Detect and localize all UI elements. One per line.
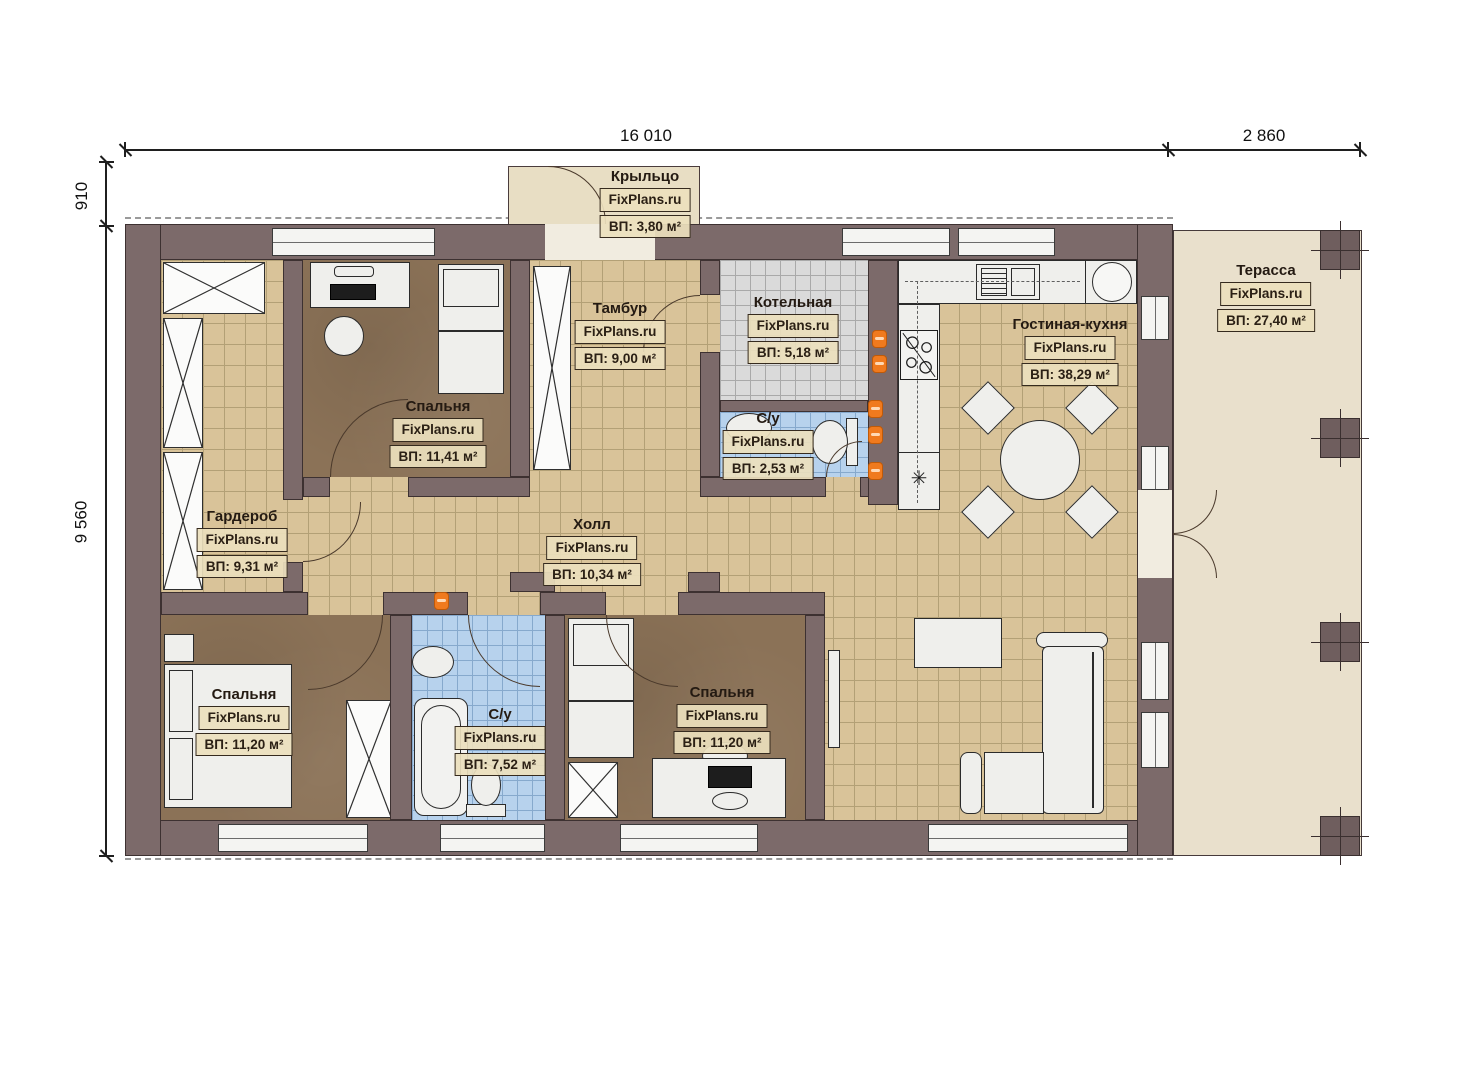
room-area: ВП: 11,20 м² xyxy=(196,733,293,757)
upper-cabinet-line xyxy=(917,281,918,503)
room-label-bedroom-mid: Спальня FixPlans.ru ВП: 11,20 м² xyxy=(674,684,771,754)
room-name: С/у xyxy=(488,706,511,723)
room-label-boiler: Котельная FixPlans.ru ВП: 5,18 м² xyxy=(748,294,839,364)
window xyxy=(620,824,758,852)
wardrobe-icon xyxy=(568,762,618,818)
room-name: Тамбур xyxy=(593,300,647,317)
wall-partition xyxy=(700,352,720,477)
dimension-stub xyxy=(1167,142,1169,157)
room-label-wardrobe: Гардероб FixPlans.ru ВП: 9,31 м² xyxy=(197,508,288,578)
room-label-hall: Холл FixPlans.ru ВП: 10,34 м² xyxy=(543,516,641,586)
wall-partition xyxy=(545,615,565,820)
sink-drainer xyxy=(981,268,1007,296)
heating-riser-icon xyxy=(872,355,887,373)
fridge-snowflake-icon: ✳ xyxy=(898,466,940,491)
room-area: ВП: 3,80 м² xyxy=(600,215,690,239)
pillow xyxy=(169,738,193,800)
heating-riser-icon xyxy=(868,400,883,418)
stove-icon xyxy=(900,330,938,380)
floor-plan: ✳ xyxy=(0,0,1473,1080)
dimension-stub xyxy=(99,225,114,227)
dimension-house-depth: 9 560 xyxy=(71,501,91,544)
room-label-living-kitchen: Гостиная-кухня FixPlans.ru ВП: 38,29 м² xyxy=(1013,316,1128,386)
dimension-top-width: 16 010 xyxy=(620,126,672,146)
room-name: Гостиная-кухня xyxy=(1013,316,1128,333)
watermark: FixPlans.ru xyxy=(600,188,691,212)
room-name: Спальня xyxy=(690,684,755,701)
room-area: ВП: 10,34 м² xyxy=(543,563,641,587)
wall-partition xyxy=(678,592,825,615)
watermark: FixPlans.ru xyxy=(1221,282,1312,306)
room-label-bedroom-top: Спальня FixPlans.ru ВП: 11,41 м² xyxy=(390,398,487,468)
dimension-stub xyxy=(99,855,114,857)
watermark: FixPlans.ru xyxy=(393,418,484,442)
room-name: Крыльцо xyxy=(611,168,679,185)
wall-partition xyxy=(540,592,606,615)
watermark: FixPlans.ru xyxy=(197,528,288,552)
roof-overhang-line-bottom xyxy=(125,858,1173,860)
closet-icon xyxy=(163,318,203,448)
pillow xyxy=(443,269,499,307)
pillow xyxy=(169,670,193,732)
watermark: FixPlans.ru xyxy=(723,430,814,454)
window xyxy=(272,228,435,256)
sink xyxy=(412,646,454,678)
wall-partition xyxy=(283,260,303,500)
sofa-armrest xyxy=(960,752,982,814)
window xyxy=(928,824,1128,852)
printer xyxy=(334,266,374,277)
heating-riser-icon xyxy=(434,592,449,610)
room-area: ВП: 11,41 м² xyxy=(390,445,487,469)
terrace-door-opening xyxy=(1138,490,1172,578)
room-label-bedroom-left: Спальня FixPlans.ru ВП: 11,20 м² xyxy=(196,686,293,756)
room-area: ВП: 38,29 м² xyxy=(1021,363,1119,387)
room-name: С/у xyxy=(756,410,779,427)
room-label-porch: Крыльцо FixPlans.ru ВП: 3,80 м² xyxy=(600,168,691,238)
terrace-column xyxy=(1320,230,1360,270)
wall-outer-left xyxy=(125,224,161,856)
room-label-terrace: Терасса FixPlans.ru ВП: 27,40 м² xyxy=(1217,262,1315,332)
terrace-column xyxy=(1320,622,1360,662)
terrace-column xyxy=(1320,418,1360,458)
office-chair xyxy=(324,316,364,356)
upper-cabinet-line xyxy=(905,281,1080,282)
window xyxy=(1141,712,1169,768)
heating-riser-icon xyxy=(868,426,883,444)
watermark: FixPlans.ru xyxy=(199,706,290,730)
nightstand xyxy=(164,634,194,662)
coffee-table xyxy=(914,618,1002,668)
watermark: FixPlans.ru xyxy=(677,704,768,728)
room-label-wc-bottom: С/у FixPlans.ru ВП: 7,52 м² xyxy=(455,706,546,776)
blanket-line xyxy=(438,330,504,332)
dimension-terrace-width: 2 860 xyxy=(1243,126,1286,146)
window xyxy=(1141,446,1169,490)
watermark: FixPlans.ru xyxy=(748,314,839,338)
sofa-back-line xyxy=(1092,652,1094,808)
dimension-stub xyxy=(124,142,126,157)
room-name: Спальня xyxy=(212,686,277,703)
room-area: ВП: 27,40 м² xyxy=(1217,309,1315,333)
dimension-stub xyxy=(99,161,114,163)
sink-basin xyxy=(1011,268,1035,296)
room-name: Спальня xyxy=(406,398,471,415)
wall-partition xyxy=(383,592,468,615)
wall-partition xyxy=(303,477,330,497)
room-label-wc-top: С/у FixPlans.ru ВП: 2,53 м² xyxy=(723,410,814,480)
room-label-tambur: Тамбур FixPlans.ru ВП: 9,00 м² xyxy=(575,300,666,370)
wall-partition xyxy=(700,260,720,295)
wall-partition xyxy=(408,477,530,497)
sofa-vertical xyxy=(1042,646,1104,814)
dimension-line-left xyxy=(105,162,107,856)
watermark: FixPlans.ru xyxy=(547,536,638,560)
room-area: ВП: 2,53 м² xyxy=(723,457,813,481)
tv xyxy=(828,650,840,748)
room-area: ВП: 11,20 м² xyxy=(674,731,771,755)
dimension-stub xyxy=(1359,142,1361,157)
dimension-porch-depth: 910 xyxy=(72,182,92,210)
room-area: ВП: 7,52 м² xyxy=(455,753,545,777)
window xyxy=(1141,642,1169,700)
desk-chair-seat xyxy=(712,792,748,810)
wall-partition xyxy=(510,260,530,477)
closet-icon xyxy=(533,266,571,470)
window xyxy=(842,228,950,256)
corner-sink xyxy=(1092,262,1132,302)
dining-table xyxy=(1000,420,1080,500)
room-area: ВП: 9,00 м² xyxy=(575,347,665,371)
wardrobe-icon xyxy=(346,700,392,818)
room-area: ВП: 5,18 м² xyxy=(748,341,838,365)
wall-partition xyxy=(161,592,308,615)
sofa-seat xyxy=(984,752,1044,814)
watermark: FixPlans.ru xyxy=(575,320,666,344)
room-name: Гардероб xyxy=(207,508,278,525)
laptop xyxy=(708,766,752,788)
laptop xyxy=(330,284,376,300)
window xyxy=(440,824,545,852)
room-name: Холл xyxy=(573,516,611,533)
wall-partition xyxy=(805,615,825,820)
heating-riser-icon xyxy=(872,330,887,348)
window xyxy=(1141,296,1169,340)
wall-partition xyxy=(390,615,412,820)
terrace-column xyxy=(1320,816,1360,856)
room-area: ВП: 9,31 м² xyxy=(197,555,287,579)
watermark: FixPlans.ru xyxy=(455,726,546,750)
dimension-line-top-main xyxy=(125,149,1168,151)
closet-icon xyxy=(163,262,265,314)
room-name: Котельная xyxy=(754,294,833,311)
window xyxy=(958,228,1055,256)
heating-riser-icon xyxy=(868,462,883,480)
watermark: FixPlans.ru xyxy=(1025,336,1116,360)
dimension-line-top-terrace xyxy=(1168,149,1360,151)
room-name: Терасса xyxy=(1236,262,1295,279)
window xyxy=(218,824,368,852)
blanket-line xyxy=(568,700,634,702)
wall-partition xyxy=(688,572,720,592)
